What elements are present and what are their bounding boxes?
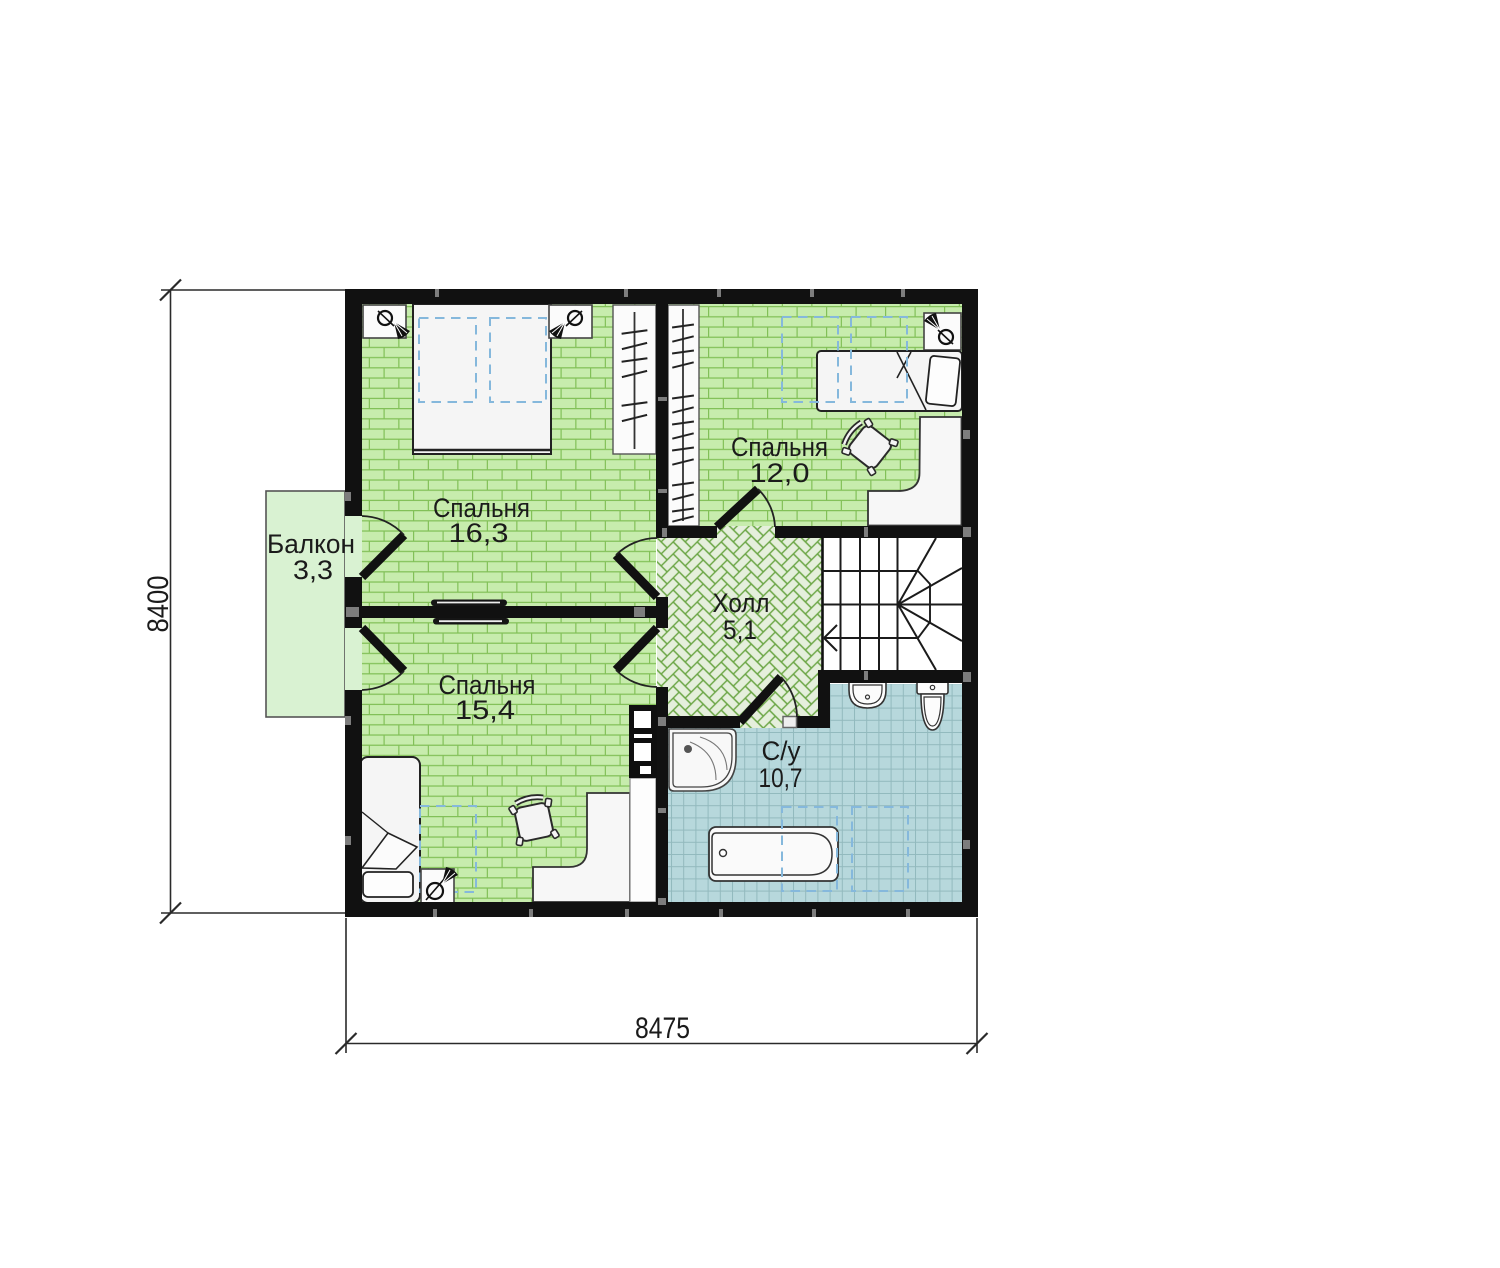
svg-text:10,7: 10,7 bbox=[759, 763, 803, 793]
svg-text:8400: 8400 bbox=[142, 576, 175, 633]
svg-text:12,0: 12,0 bbox=[750, 458, 810, 488]
svg-text:С/у: С/у bbox=[762, 736, 801, 766]
svg-text:3,3: 3,3 bbox=[293, 555, 333, 585]
svg-text:15,4: 15,4 bbox=[455, 695, 515, 725]
svg-text:8475: 8475 bbox=[635, 1012, 690, 1045]
svg-text:5,1: 5,1 bbox=[723, 615, 757, 645]
svg-text:16,3: 16,3 bbox=[449, 518, 509, 548]
svg-text:Холл: Холл bbox=[713, 588, 770, 618]
